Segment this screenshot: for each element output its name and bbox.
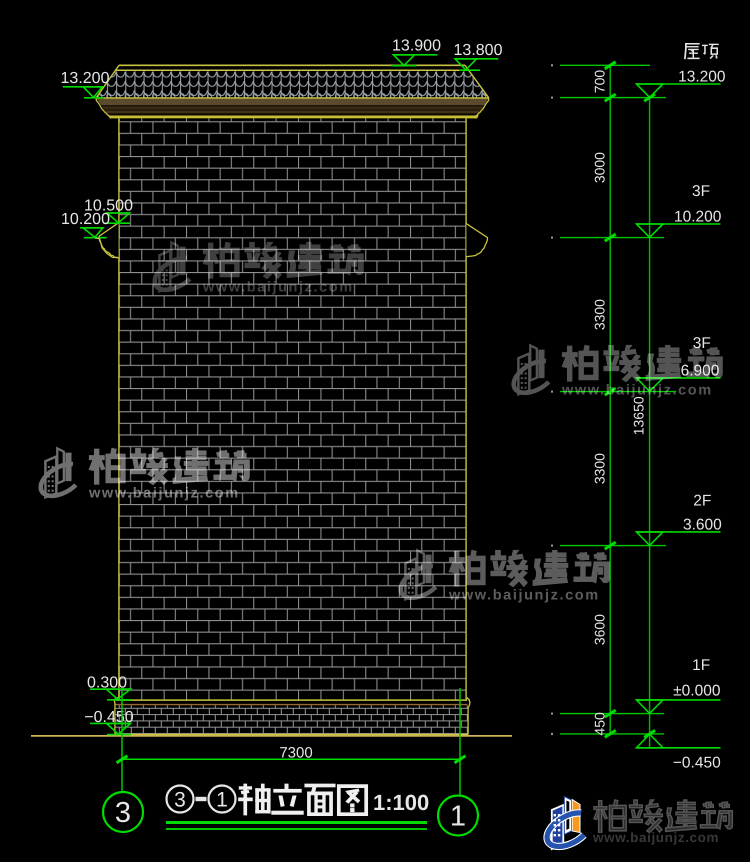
svg-text:1:100: 1:100 [373,790,429,815]
svg-text:1F: 1F [692,657,710,674]
svg-text:10.200: 10.200 [61,211,110,228]
svg-text:1: 1 [216,789,228,812]
svg-text:700: 700 [592,70,608,94]
svg-text:13.200: 13.200 [61,70,110,87]
svg-text:2F: 2F [693,493,711,510]
svg-text:−0.450: −0.450 [673,754,721,771]
svg-text:7300: 7300 [279,744,312,761]
svg-text:3300: 3300 [592,299,608,330]
svg-text:3: 3 [115,797,131,829]
svg-text:±0.000: ±0.000 [673,683,721,700]
svg-text:3F: 3F [692,183,710,200]
svg-text:−0.450: −0.450 [84,709,133,726]
svg-text:3600: 3600 [592,614,608,645]
svg-text:13.900: 13.900 [392,38,441,55]
svg-text:450: 450 [592,712,608,736]
svg-text:3: 3 [174,789,186,812]
svg-text:3.600: 3.600 [683,516,722,533]
svg-text:3000: 3000 [592,152,608,183]
svg-text:www.baijunjz.com: www.baijunjz.com [592,830,719,845]
svg-text:0.300: 0.300 [87,674,127,691]
svg-text:13650: 13650 [631,396,647,435]
svg-text:3300: 3300 [592,453,608,484]
svg-text:1: 1 [450,801,466,833]
svg-text:10.200: 10.200 [674,208,722,225]
svg-text:13.800: 13.800 [454,42,503,59]
svg-text:13.200: 13.200 [678,68,726,85]
